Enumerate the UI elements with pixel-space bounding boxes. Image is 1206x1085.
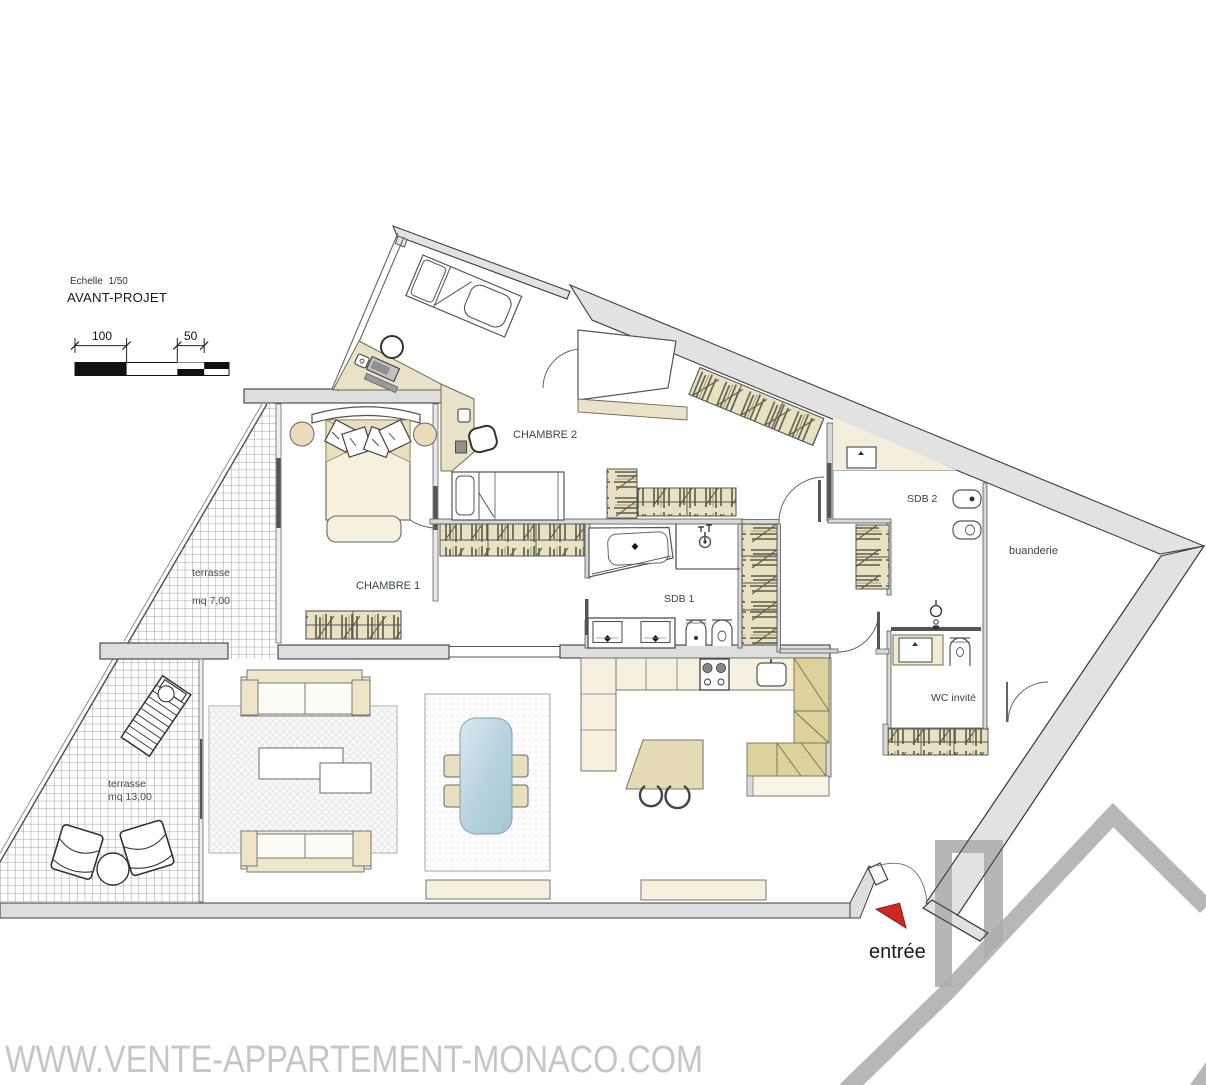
svg-text:WC invité: WC invité: [931, 692, 976, 704]
svg-text:entrée: entrée: [869, 941, 926, 963]
svg-text:CHAMBRE 1: CHAMBRE 1: [356, 580, 420, 592]
svg-text:CHAMBRE 2: CHAMBRE 2: [513, 429, 577, 441]
svg-text:terrasse: terrasse: [108, 778, 146, 790]
svg-text:Echelle 1/50: Echelle 1/50: [70, 276, 128, 287]
svg-text:AVANT-PROJET: AVANT-PROJET: [67, 290, 167, 305]
svg-text:mq 7,00: mq 7,00: [192, 595, 230, 607]
svg-text:100: 100: [92, 329, 112, 343]
svg-text:buanderie: buanderie: [1009, 545, 1058, 557]
svg-text:terrasse: terrasse: [192, 567, 230, 579]
svg-text:SDB 2: SDB 2: [907, 493, 938, 505]
svg-text:WWW.VENTE-APPARTEMENT-MONACO.C: WWW.VENTE-APPARTEMENT-MONACO.COM: [5, 1039, 703, 1081]
svg-text:mq 13,00: mq 13,00: [108, 791, 152, 803]
svg-text:50: 50: [184, 329, 198, 343]
svg-text:SDB 1: SDB 1: [664, 593, 695, 605]
